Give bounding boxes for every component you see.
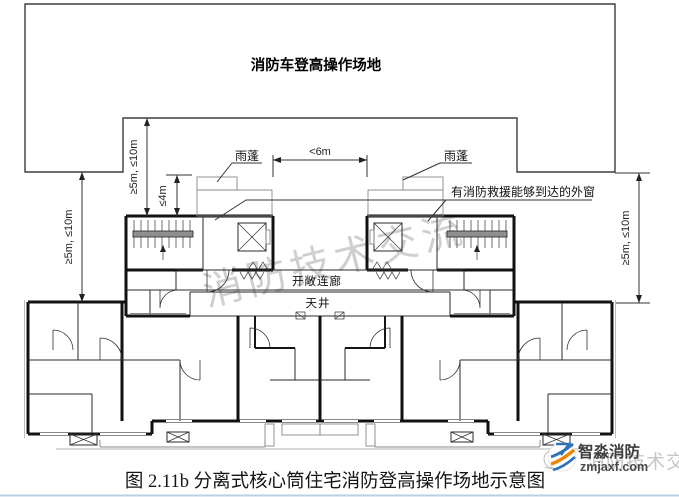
svg-text:雨蓬: 雨蓬 <box>444 149 468 163</box>
logo-website: zmjaxf.com <box>580 460 648 474</box>
zhimiao-logo: 智淼消防 zmjaxf.com <box>548 442 648 474</box>
logo-brand: 智淼消防 <box>578 442 641 461</box>
dimension-inner-left: ≥5m, ≤10m <box>128 118 150 216</box>
dimension-outer-right: ≥5m, ≤10m <box>615 173 650 303</box>
label-open-corridor: 开敞连廊 <box>292 274 342 288</box>
dim-text: ≥5m, ≤10m <box>128 140 140 195</box>
operation-area-label: 消防车登高操作场地 <box>251 56 382 74</box>
dim-text: ≥5m, ≤10m <box>620 211 632 266</box>
dim-text: ≥5m, ≤10m <box>63 210 75 265</box>
figure-page: 消防技术交流 消防车登高操作场地 ≥5m, ≤10m ≥5m, ≤10m ≤4m… <box>0 0 679 497</box>
label-canopy-right: 雨蓬 <box>403 149 472 180</box>
dim-text: ≤4m <box>157 185 169 206</box>
building-plan <box>25 177 616 449</box>
figure-caption: 图 2.11b 分离式核心筒住宅消防登高操作场地示意图 <box>125 471 545 492</box>
label-light-well: 天井 <box>306 296 331 310</box>
dim-text: <6m <box>309 146 331 158</box>
fire-access-diagram: 消防技术交流 消防车登高操作场地 ≥5m, ≤10m ≥5m, ≤10m ≤4m… <box>0 0 679 497</box>
svg-text:有消防救援能够到达的外窗: 有消防救援能够到达的外窗 <box>451 184 595 199</box>
svg-text:雨蓬: 雨蓬 <box>235 149 259 163</box>
dimension-core-gap: <6m <box>273 146 367 177</box>
dimension-outer-left: ≥5m, ≤10m <box>63 172 85 302</box>
dimension-canopy-height: ≤4m <box>157 175 192 216</box>
